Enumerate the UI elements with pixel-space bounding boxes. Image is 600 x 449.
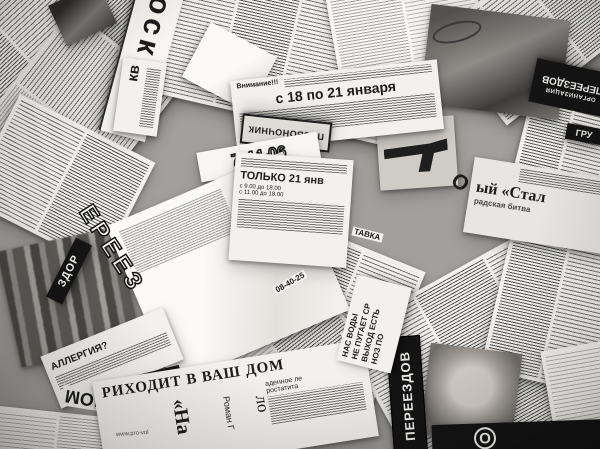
fine-print (237, 197, 345, 234)
gru-label: ГРУ (575, 128, 593, 141)
fine-print (119, 189, 238, 274)
na-vertical-label: «На (146, 397, 195, 439)
pistol-silhouette (383, 134, 449, 176)
lo-vertical-label: ло (227, 394, 273, 418)
text-column (0, 409, 56, 449)
kv-label: кв (124, 64, 143, 83)
schedule-ad-scrap: ТОЛЬКО 21 янв с 9.00 до 18.00 с 11.00 до… (228, 152, 353, 268)
bottom-black-bar: О (432, 419, 600, 449)
black-bar-mark: О (474, 427, 497, 449)
newspaper-collage-photo: ОРГАНИЗАЦИЯ ПЕРЕЕЗДОВ ГРУ ЗДОР ПЕРЕЕЗДОВ… (0, 0, 600, 449)
pereezdov-vertical-label: ПЕРЕЕЗДОВ (396, 351, 417, 442)
fine-print (139, 67, 161, 128)
stavka-label: ТАВКА (351, 226, 383, 242)
kv-scrap: кв (113, 57, 167, 136)
attention-label: Внимание!!! (236, 79, 278, 90)
